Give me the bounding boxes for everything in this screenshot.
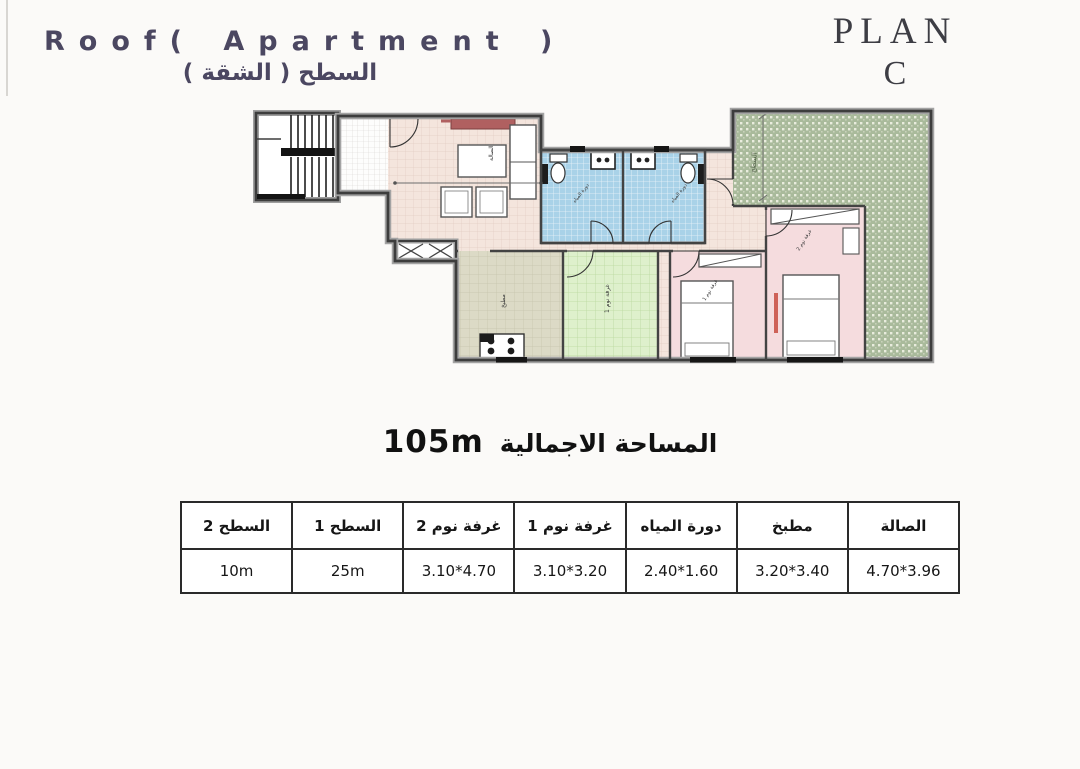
table-value-row: 10m 25m 3.10*4.70 3.10*3.20 2.40*1.60 3.…: [181, 549, 959, 593]
room-label-kitchen: مطبخ: [500, 294, 507, 308]
col-header-roof-1: السطح 1: [292, 502, 403, 549]
room-label-green-room: غرفة نوم 1: [604, 284, 611, 313]
total-area-label: المساحة الاجمالية: [500, 429, 718, 458]
room-dimensions-table: السطح 2 السطح 1 غرفة نوم 2 غرفة نوم 1 دو…: [180, 501, 960, 594]
bedroom-rug: [774, 293, 778, 333]
sofa: [441, 119, 515, 129]
stove: [480, 334, 524, 358]
scan-edge-artifact: [6, 0, 8, 96]
sink-vanity: [591, 152, 615, 169]
cell-roof-1: 25m: [292, 549, 403, 593]
total-area-value: 105m: [383, 424, 484, 460]
cell-living: 4.70*3.96: [848, 549, 959, 593]
cell-kitchen: 3.20*3.40: [737, 549, 848, 593]
floor-plan-svg: الصالة دورة المياه دورة المياه مطبخ غرفة…: [253, 103, 935, 395]
cell-roof-2: 10m: [181, 549, 292, 593]
cell-bedroom-2: 3.10*4.70: [403, 549, 514, 593]
bed: [783, 275, 839, 359]
dining-chair: [441, 187, 472, 217]
toilet: [680, 154, 697, 183]
col-header-roof-2: السطح 2: [181, 502, 292, 549]
page-title-arabic: السطح ( الشقة ): [50, 60, 510, 86]
wardrobe: [699, 254, 761, 267]
plan-code-label: PLAN C: [820, 10, 970, 93]
table-header-row: السطح 2 السطح 1 غرفة نوم 2 غرفة نوم 1 دو…: [181, 502, 959, 549]
sink-vanity: [631, 152, 655, 169]
col-header-bedroom-2: غرفة نوم 2: [403, 502, 514, 549]
entry-vestibule-floor: [339, 116, 388, 193]
floor-plan: الصالة دورة المياه دورة المياه مطبخ غرفة…: [253, 103, 935, 395]
toilet: [550, 154, 567, 183]
dining-table: [458, 145, 506, 177]
col-header-bathroom: دورة المياه: [626, 502, 737, 549]
room-label-living: الصالة: [488, 145, 495, 161]
stair-landing-bar: [281, 148, 338, 156]
plan-letter: C: [820, 55, 970, 93]
cabinet-unit: [510, 125, 536, 199]
col-header-bedroom-1: غرفة نوم 1: [514, 502, 625, 549]
plan-word: PLAN: [820, 10, 970, 53]
roof-apartment-plan-page: { "header": { "title_en": "Roof( Apartme…: [0, 0, 1080, 769]
wardrobe: [771, 209, 859, 224]
dining-chair: [476, 187, 507, 217]
total-area-line: المساحة الاجمالية 105m: [300, 424, 800, 460]
cell-bedroom-1: 3.10*3.20: [514, 549, 625, 593]
stairwell: [256, 113, 338, 200]
col-header-kitchen: مطبخ: [737, 502, 848, 549]
col-header-living: الصالة: [848, 502, 959, 549]
bedside-table: [843, 228, 859, 254]
cell-bathroom: 2.40*1.60: [626, 549, 737, 593]
page-title-english: Roof( Apartment ): [44, 26, 524, 57]
